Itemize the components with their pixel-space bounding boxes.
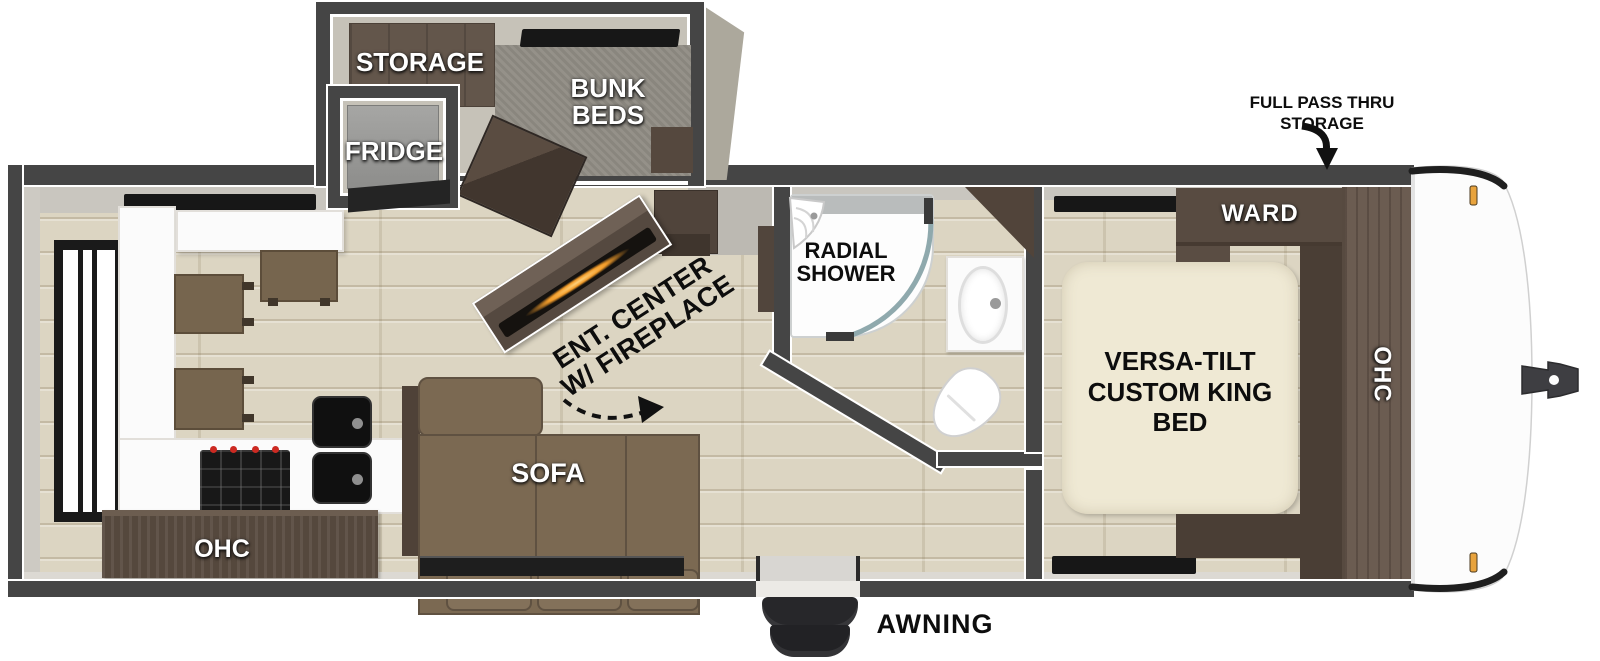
radial-shower-label: RADIAL SHOWER xyxy=(770,240,922,286)
stove-knob xyxy=(272,446,279,453)
wardrobe: WARD xyxy=(1176,188,1342,246)
chair-leg xyxy=(242,318,254,326)
stove-knob xyxy=(210,446,217,453)
chair-leg xyxy=(268,298,278,306)
awning-label-text: AWNING xyxy=(877,609,994,639)
chair-leg xyxy=(242,376,254,384)
pass-thru-arrow-icon xyxy=(1296,120,1352,172)
wardrobe-label: WARD xyxy=(1210,202,1310,227)
king-bed-label: VERSA-TILT CUSTOM KING BED xyxy=(1080,346,1280,438)
bed-foot-bench xyxy=(1176,514,1300,558)
chair-leg xyxy=(242,414,254,422)
sofa-label: SOFA xyxy=(473,459,623,487)
sink-basin xyxy=(312,396,372,448)
awning-label: AWNING xyxy=(850,610,1020,638)
bunk-slideout-extrusion xyxy=(700,0,746,180)
bedroom-ohc-label: OHC xyxy=(1369,324,1394,424)
swivel-arrow-icon xyxy=(558,392,670,434)
sink-faucet xyxy=(352,474,363,485)
rear-window-mullion xyxy=(78,250,83,512)
marker-light xyxy=(1470,186,1477,205)
king-bed-mattress: VERSA-TILT CUSTOM KING BED xyxy=(1062,262,1298,514)
wall-top-rear xyxy=(8,165,332,185)
bedroom-cabinet-column xyxy=(1300,246,1342,582)
hitch-coupler xyxy=(1522,362,1578,398)
vanity-faucet xyxy=(990,298,1001,309)
stove xyxy=(200,450,290,514)
rear-window xyxy=(54,240,124,522)
kitchen-ohc-label: OHC xyxy=(162,536,282,562)
marker-light xyxy=(1470,553,1477,572)
sofa-seam xyxy=(535,436,537,571)
sofa-chaise-back xyxy=(418,377,543,437)
dinette-chair xyxy=(174,274,244,334)
stove-knob xyxy=(230,446,237,453)
bunk-beds-label: BUNK BEDS xyxy=(545,75,671,129)
wall-left-rear xyxy=(8,165,22,597)
interior-wall-band-left xyxy=(22,185,40,575)
bath-vanity xyxy=(946,256,1024,352)
bunk-window xyxy=(520,29,681,47)
kitchen-ohc-cabinet: OHC xyxy=(102,510,378,578)
entry-door-threshold xyxy=(756,556,860,581)
dinette-table xyxy=(176,210,344,252)
kitchen-sink xyxy=(310,394,376,510)
dinette-chair xyxy=(174,368,244,430)
bathroom-wall-bottom xyxy=(938,452,1042,466)
bunk-side-cabinet xyxy=(651,127,693,173)
storage-label: STORAGE xyxy=(345,49,495,76)
entry-door-opening xyxy=(756,581,860,597)
bedroom-bottom-window xyxy=(1052,556,1196,574)
bedroom-top-window xyxy=(1054,196,1196,212)
rear-window-pane xyxy=(63,250,115,512)
entry-step xyxy=(770,625,850,657)
chair-leg xyxy=(320,298,330,306)
fridge-label: FRIDGE xyxy=(334,138,454,165)
toilet-seam xyxy=(946,394,976,422)
fridge-label-text: FRIDGE xyxy=(345,136,443,166)
wardrobe-shelf xyxy=(1176,246,1230,262)
radial-shower-label-text: RADIAL SHOWER xyxy=(797,238,896,286)
rv-floorplan: OHC SOFA ENT. CENTER W/ FIREPLACE xyxy=(0,0,1600,661)
sofa-seam xyxy=(625,436,627,571)
chair-leg xyxy=(242,282,254,290)
stove-knob xyxy=(252,446,259,453)
bedroom-wall-lower xyxy=(1026,470,1042,586)
dinette-chair xyxy=(260,250,338,302)
sink-basin xyxy=(312,452,372,504)
sofa-slide-rail xyxy=(420,556,684,576)
front-cap xyxy=(1400,158,1590,606)
wall-bottom xyxy=(8,581,1414,597)
rear-window-mullion xyxy=(92,250,97,512)
sink-faucet xyxy=(352,418,363,429)
